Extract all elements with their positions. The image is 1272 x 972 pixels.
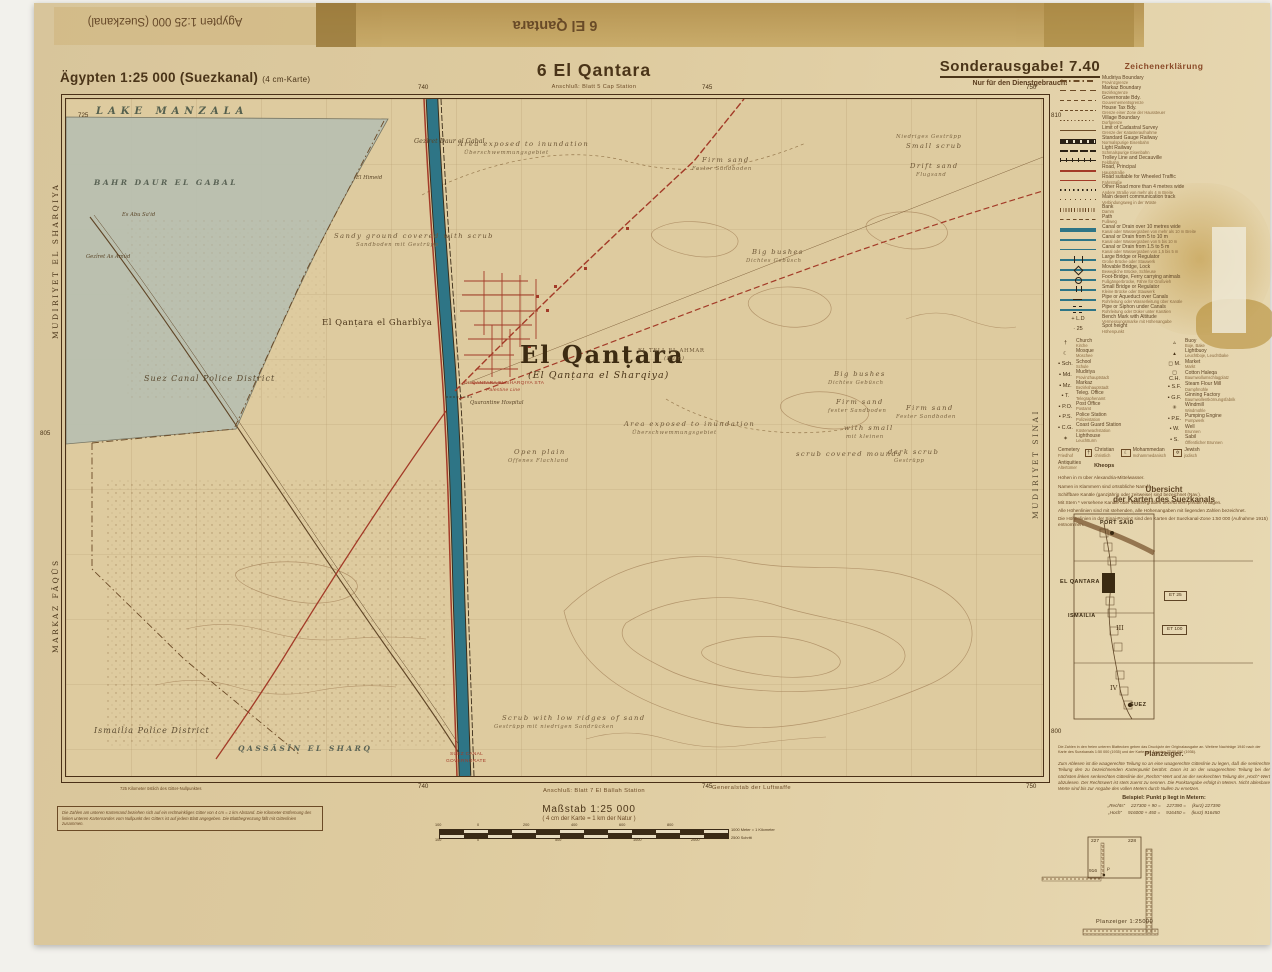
grid-number: 750	[1026, 784, 1036, 790]
legend-row: Movable Bridge, Lock Bewegliche Brücke, …	[1058, 265, 1270, 275]
scale-tick: 100	[435, 839, 441, 843]
legend-table-row: ▪ Mz. MarkazBezirkshauptstadt	[1058, 380, 1161, 391]
paper-sheet: Ägypten 1:25 000 (Suezkanal) 6 El Qantar…	[34, 3, 1270, 945]
legend-glyph: ▵	[1167, 340, 1182, 346]
legend-table-row: ▪ C.G. Coast Guard StationKüstenwachstat…	[1058, 423, 1161, 434]
sheet-title: 6 El Qantara	[464, 60, 724, 81]
scale-tick: 400	[571, 824, 577, 828]
legend-table-row: ▴ LightbuoyLeuchtboje, Leuchtbake	[1167, 349, 1270, 360]
scale-tick: 200	[523, 824, 529, 828]
legend-symbol	[1058, 236, 1098, 244]
legend-symbol: · 25	[1058, 325, 1098, 333]
map-label: El Himeid	[356, 176, 382, 181]
diagram-row-1: 916	[1089, 869, 1097, 874]
legend-glyph: ▪ Mz.	[1058, 383, 1073, 389]
legend-label: Governorate Bdy. Gouvernementsgrenze	[1102, 96, 1144, 106]
legend-symbol	[1058, 117, 1098, 125]
legend-glyph: †	[1058, 340, 1073, 346]
diagram-col-1: 227	[1091, 839, 1099, 844]
scale-tick: 0	[477, 839, 479, 843]
map-label: Überschwemmungsgebiet	[632, 431, 717, 436]
legend-glyph: • P.E.	[1167, 416, 1182, 422]
legend-label: Spot height Höhenpunkt	[1102, 324, 1127, 334]
map-label: scrub covered mounds	[796, 451, 902, 458]
map-label: Gestrüpp mit niedrigen Sandrücken	[494, 725, 614, 730]
map-label: Niedriges Gestrüpp	[896, 135, 962, 140]
legend-glyph: ▪ G.F.	[1167, 395, 1182, 401]
legend-label: Small Bridge or Regulator Kleine Brücke …	[1102, 285, 1159, 295]
legend-table-row: • P.E. Pumping EnginePumpwerk	[1167, 414, 1270, 425]
legend-row: Bank Damm	[1058, 205, 1270, 215]
flipped-sheet-title: 6 El Qantara	[470, 17, 640, 33]
cemetery-entries: † Christianchristlich ☾ Mohammedanmohamm…	[1085, 448, 1200, 458]
grid-number: 740	[418, 784, 428, 790]
legend-row: · 25 Spot height Höhenpunkt	[1058, 324, 1270, 334]
legend-glyph: ▪ Md.	[1058, 372, 1073, 378]
planzeiger-block: Planzeiger. Zum Ablesen ist die waagerec…	[1058, 749, 1270, 815]
index-map-label: ISMAILIA	[1068, 614, 1096, 619]
map-label: Drift sand	[910, 163, 959, 170]
legend-table-row: ▪ T. Teleg. OfficeTelegraphenamt	[1058, 391, 1161, 402]
legend-symbol	[1058, 266, 1098, 274]
map-label: Big bushes	[752, 249, 804, 256]
legend-table-row: † ChurchKirche	[1058, 338, 1161, 349]
scale-tick: 500	[555, 839, 561, 843]
map-label: EL TELL EL AHMAR	[638, 349, 705, 354]
adjoin-note-bottom: Anschluß: Blatt 7 El Bällah Station	[454, 788, 734, 794]
legend-label-de: Höhenpunkt	[1102, 330, 1127, 334]
diagram-col-2: 228	[1128, 839, 1136, 844]
legend-label: Limit of Cadastral Survey Grenze der Kat…	[1102, 126, 1158, 136]
planzeiger-example-row: „Rechts“227300 + 90 = 227390 =(kurz) 227…	[1058, 803, 1270, 808]
legend-table-row: ▵ BuoyBoje, Bake	[1167, 338, 1270, 349]
legend-label: Large Bridge or Regulator Große Brücke o…	[1102, 255, 1160, 265]
legend-row: Village Boundary Dorfgrenze	[1058, 116, 1270, 126]
planzeiger-example-row: „Hoch“916000 + 450 = 916450 =(kurz) 9164…	[1058, 810, 1270, 815]
legend-symbol	[1058, 216, 1098, 224]
index-map-title: Übersicht der Karten des Suezkanals	[1058, 485, 1270, 505]
map-label: Es Abu Sa'id	[122, 213, 155, 218]
legend-row: Limit of Cadastral Survey Grenze der Kat…	[1058, 126, 1270, 136]
legend-symbol	[1058, 276, 1098, 284]
map-label: Area exposed to inundation	[624, 421, 755, 428]
legend-symbol	[1058, 136, 1098, 144]
legend-table-row: • S. SabilÖffentlicher Brunnen	[1167, 435, 1270, 446]
scale-block: Maßstab 1:25 000 ( 4 cm der Karte = 1 km…	[424, 804, 754, 842]
scale-tick: 2000	[691, 839, 699, 843]
legend-row: Markaz Boundary Bezirksgrenze	[1058, 86, 1270, 96]
edge-label: MARKAZ FÂQÛS	[52, 558, 60, 653]
map-label: SUEZ CANAL	[450, 753, 483, 758]
legend-row: Large Bridge or Regulator Große Brücke o…	[1058, 255, 1270, 265]
legend-row: Governorate Bdy. Gouvernementsgrenze	[1058, 96, 1270, 106]
legend-row: + L.D Bench Mark with Altitude Vermessun…	[1058, 315, 1270, 325]
scale-tick: 1000	[633, 839, 641, 843]
series-note: (4 cm-Karte)	[262, 75, 310, 84]
grid-number: 740	[418, 85, 428, 91]
legend-row: Pipe or Aqueduct over Canals Rohrleitung…	[1058, 295, 1270, 305]
legend-table-row: ▪ G.F. Ginning FactoryBaumwollentkörnung…	[1167, 392, 1270, 403]
map-labels: LAKE MANZALABAHR DAUR EL GABALGezîret Da…	[66, 99, 1043, 776]
legend-symbol	[1058, 256, 1098, 264]
legend-label: Main desert communication track Verbindu…	[1102, 195, 1175, 205]
legend-row: Pipe or Siphon under Canals Rohrleitung …	[1058, 305, 1270, 315]
legend-label-de: Verbindungsweg in der Wüste	[1102, 201, 1175, 205]
scale-caption-metres: 1000 Meter = 1 Kilometer	[731, 827, 775, 832]
map-label: BAHR DAUR EL GABAL	[94, 179, 238, 187]
map-label: Sandy ground covered with scrub	[334, 233, 494, 240]
legend-symbol	[1058, 146, 1098, 154]
legend-title: Zeichenerklärung	[1058, 61, 1270, 71]
map-label: El Qanṭara el Gharbîya	[322, 319, 432, 328]
legend-row: House Tax Bdy. Grenze einer Zone der Hau…	[1058, 106, 1270, 116]
legend-row: Foot-Bridge, Ferry carrying animals Fußg…	[1058, 275, 1270, 285]
legend-label: Light Railway Schmalspurige Eisenbahn	[1102, 146, 1150, 156]
tape-strip-top	[316, 3, 1144, 47]
legend-glyph: • S.	[1167, 437, 1182, 443]
series-title-text: Ägypten 1:25 000 (Suezkanal)	[60, 70, 258, 85]
legend-row: Small Bridge or Regulator Kleine Brücke …	[1058, 285, 1270, 295]
map-label: Firm sand	[836, 399, 884, 406]
legend-symbol	[1058, 166, 1098, 174]
map-label: Area exposed to inundation	[458, 141, 589, 148]
legend-table-row: ▪ P.O. Post OfficePostamt	[1058, 402, 1161, 413]
map-label: GOVERNORATE	[446, 760, 486, 765]
legend-row: Trolley Line and Decauville Feldbahn	[1058, 156, 1270, 166]
scale-bar: 1000 Meter = 1 Kilometer 2500 Schritt 10…	[439, 826, 739, 842]
legend-rows: Mudiriya Boundary Provinzgrenze Markaz B…	[1058, 76, 1270, 334]
map-label: mit kleinen	[846, 435, 884, 440]
legend-antiquities-row: AntiquitiesAltertümer Kheops	[1058, 461, 1270, 471]
map-label: Dichtes Gebüsch	[828, 381, 884, 386]
antiquities-example: Kheops	[1094, 463, 1114, 469]
map-label: (El Qanṭara el Sharqiya)	[528, 371, 669, 381]
scale-tick: 800	[667, 824, 673, 828]
legend-label: Village Boundary Dorfgrenze	[1102, 116, 1140, 126]
map-label: Flugsand	[916, 173, 946, 178]
legend-table-row: ▪ P.S. Police StationPolizeistation	[1058, 412, 1161, 423]
map-label: Sandboden mit Gestrüpp	[356, 243, 439, 248]
legend-table-row: ◻ M. MarketMarkt	[1167, 359, 1270, 370]
scale-tick: 0	[477, 824, 479, 828]
legend-glyph: ▪ T.	[1058, 393, 1073, 399]
map-label: Gestrüpp	[894, 459, 925, 464]
legend-glyph: ▴	[1167, 351, 1182, 357]
cemetery-entry: ✡ Jewishjüdisch	[1173, 448, 1200, 458]
diagram-point-p: p	[1107, 867, 1110, 872]
legend-symbol	[1058, 176, 1098, 184]
map-label: Fester Sandboden	[896, 415, 956, 420]
series-title: Ägypten 1:25 000 (Suezkanal) (4 cm-Karte…	[60, 70, 310, 85]
legend-label: House Tax Bdy. Grenze einer Zone der Hau…	[1102, 106, 1165, 116]
legend-row: Standard Gauge Railway Normalspurige Eis…	[1058, 136, 1270, 146]
planzeiger-title: Planzeiger.	[1058, 749, 1270, 758]
legend-cemetery-row: CemeteryFriedhof † Christianchristlich ☾…	[1058, 448, 1270, 458]
legend-table-row: ▪ S.F. Steam Flour MillDampfmühle	[1167, 382, 1270, 393]
legend-symbol	[1058, 196, 1098, 204]
map-label: with small	[844, 425, 894, 432]
scale-caption-paces: 2500 Schritt	[731, 835, 752, 840]
legend-symbol-table: † ChurchKirche ☾ MosqueMoschee ▪ Sch. Sc…	[1058, 338, 1270, 445]
legend-row: Mudiriya Boundary Provinzgrenze	[1058, 76, 1270, 86]
legend-row: Canal or Drain from 1.5 to 5 m Kanal ode…	[1058, 245, 1270, 255]
legend-glyph: ▪ P.S.	[1058, 414, 1073, 420]
legend-table-row: ✳ WindmillWindmühle	[1167, 403, 1270, 414]
legend-glyph: ▪ Sch.	[1058, 361, 1073, 367]
map-label: Offenes Flachland	[508, 459, 569, 464]
legend-table-row: ◻ C.H. Cotton HaleqaBaumwollumschlagplat…	[1167, 370, 1270, 382]
legend-glyph: ✶	[1058, 436, 1073, 442]
legend-symbol	[1058, 107, 1098, 115]
legend-symbol	[1058, 285, 1098, 293]
legend-label: Movable Bridge, Lock Bewegliche Brücke, …	[1102, 265, 1156, 275]
map-canvas: LAKE MANZALABAHR DAUR EL GABALGezîret Da…	[65, 98, 1044, 777]
legend-symbol	[1058, 97, 1098, 105]
publisher-imprint: Generalstab der Luftwaffe	[712, 785, 791, 791]
scale-note: ( 4 cm der Karte = 1 km der Natur )	[424, 816, 754, 822]
legend-label: Foot-Bridge, Ferry carrying animals Fußg…	[1102, 275, 1180, 285]
planzeiger-diagram: 227 228 916 p Planzeiger 1:25000	[1038, 833, 1272, 945]
legend-label: Pipe or Aqueduct over Canals Rohrleitung…	[1102, 295, 1182, 305]
cemetery-entry: † Christianchristlich	[1085, 448, 1115, 458]
legend-symbol	[1058, 77, 1098, 85]
legend-glyph: ◻ C.H.	[1167, 370, 1182, 382]
legend-glyph: ▪ P.O.	[1058, 404, 1073, 410]
map-label: LAKE MANZALA	[96, 107, 248, 117]
map-label: Firm sand	[906, 405, 954, 412]
legend-table-row: • W. WellBrunnen	[1167, 424, 1270, 435]
legend-glyph: ✳	[1167, 405, 1182, 411]
scale-bar-paces	[439, 834, 729, 839]
legend-symbol	[1058, 226, 1098, 234]
legend-symbol	[1058, 206, 1098, 214]
scale-tick: 100	[435, 824, 441, 828]
edge-label: MUDIRIYET EL SHARQIYA	[52, 183, 60, 339]
cemetery-glyph: †	[1085, 449, 1093, 457]
scale-tick: 600	[619, 824, 625, 828]
cemetery-glyph: ☾	[1121, 449, 1130, 457]
legend-label: Pipe or Siphon under Canals Rohrleitung …	[1102, 305, 1171, 315]
map-label: Suez Canal Police District	[144, 375, 275, 383]
planzeiger-examples: „Rechts“227300 + 90 = 227390 =(kurz) 227…	[1058, 803, 1270, 815]
map-label: Open plain	[514, 449, 566, 456]
index-map: PORT SAIDEL QANTARAISMAILIASUEZIIIIVET 2…	[1058, 509, 1270, 741]
legend: Zeichenerklärung Mudiriya Boundary Provi…	[1058, 61, 1270, 530]
map-label: Dichtes Gebüsch	[746, 259, 802, 264]
map-label: QASSÂSÎN EL SHARQ	[238, 745, 372, 753]
index-map-label: III	[1116, 625, 1124, 632]
planzeiger-body: Zum Ablesen ist die waagerechte Teilung …	[1058, 761, 1270, 792]
legend-symbol	[1058, 305, 1098, 313]
map-label: Quarantine Hospital	[470, 401, 524, 406]
legend-symbol	[1058, 126, 1098, 134]
adjoin-note-top: Anschluß: Blatt 5 Cap Station	[464, 84, 724, 90]
map-label: El Qanṭara	[520, 343, 685, 367]
cemetery-entry: ☾ Mohammedanmohammedanisch	[1121, 448, 1166, 458]
map-label: EL QANTARA EL SHARQIYA STA	[464, 382, 544, 387]
legend-row: Light Railway Schmalspurige Eisenbahn	[1058, 146, 1270, 156]
map-label: Ismailia Police District	[94, 727, 210, 735]
legend-glyph: • W.	[1167, 426, 1182, 432]
legend-symbol	[1058, 295, 1098, 303]
planzeiger-caption: Planzeiger 1:25000	[1096, 919, 1153, 925]
index-map-label: EL QANTARA	[1060, 580, 1100, 585]
map-label: fester Sandboden	[828, 409, 887, 414]
index-map-label: IV	[1110, 685, 1117, 692]
legend-label: Standard Gauge Railway Normalspurige Eis…	[1102, 136, 1158, 146]
map-label: Firm sand	[702, 157, 750, 164]
map-label: dark scrub	[888, 449, 939, 456]
map-label: Gezîret As Amûd	[86, 255, 130, 260]
legend-table-row: ▪ Md. MudiriyaProvinzhauptstadt	[1058, 370, 1161, 381]
index-map-label: ET 25	[1164, 591, 1187, 601]
planzeiger-example-title: Beispiel: Punkt p liegt in Metern:	[1058, 795, 1270, 801]
legend-table-row: ▪ Sch. SchoolSchule	[1058, 359, 1161, 370]
flipped-series-title: Ägypten 1:25 000 (Suezkanal)	[60, 15, 270, 27]
index-map-block: Übersicht der Karten des Suezkanals	[1058, 485, 1270, 755]
cemetery-glyph: ✡	[1173, 449, 1182, 457]
legend-glyph: ▪ C.G.	[1058, 425, 1073, 431]
index-map-label: SUEZ	[1130, 703, 1146, 708]
index-map-label: ET 100	[1162, 625, 1187, 635]
legend-table-row: ☾ MosqueMoschee	[1058, 349, 1161, 360]
scale-heading: Maßstab 1:25 000	[424, 804, 754, 815]
legend-row: Main desert communication track Verbindu…	[1058, 195, 1270, 205]
index-map-label: PORT SAID	[1100, 521, 1134, 526]
legend-symbol	[1058, 246, 1098, 254]
map-label: Big bushes	[834, 371, 886, 378]
map-label: (Ruin)	[664, 357, 685, 362]
map-label: Überschwemmungsgebiet	[464, 151, 549, 156]
legend-note: Höhen in m über Alexandria-Mittelwasser.	[1058, 475, 1270, 481]
legend-table-right: ▵ BuoyBoje, Bake ▴ LightbuoyLeuchtboje, …	[1167, 338, 1270, 445]
legend-table-row: ✶ LighthouseLeuchtturm	[1058, 433, 1161, 444]
grid-number: 805	[40, 431, 50, 437]
map-label: Small scrub	[906, 143, 962, 150]
legend-glyph: ▪ S.F.	[1167, 384, 1182, 390]
legend-glyph: ☾	[1058, 351, 1073, 357]
legend-symbol: + L.D	[1058, 315, 1098, 323]
legend-glyph: ◻ M.	[1167, 361, 1182, 367]
margin-note-box: Die Zahlen am unteren Kartenrand beziehe…	[57, 806, 323, 831]
map-label: Scrub with low ridges of sand	[502, 715, 646, 722]
map-label: Fester Sandboden	[692, 167, 752, 172]
grid-origin-note: 725 Kilometer östlich des Gitter-Nullpun…	[120, 786, 201, 791]
map-label: Palestine Line	[486, 389, 520, 394]
legend-symbol	[1058, 186, 1098, 194]
legend-table-left: † ChurchKirche ☾ MosqueMoschee ▪ Sch. Sc…	[1058, 338, 1161, 445]
legend-symbol	[1058, 87, 1098, 95]
legend-symbol	[1058, 156, 1098, 164]
planzeiger-diagram-artwork	[1038, 833, 1272, 945]
map-label: MUDIRIYET SINAI	[1032, 409, 1040, 519]
